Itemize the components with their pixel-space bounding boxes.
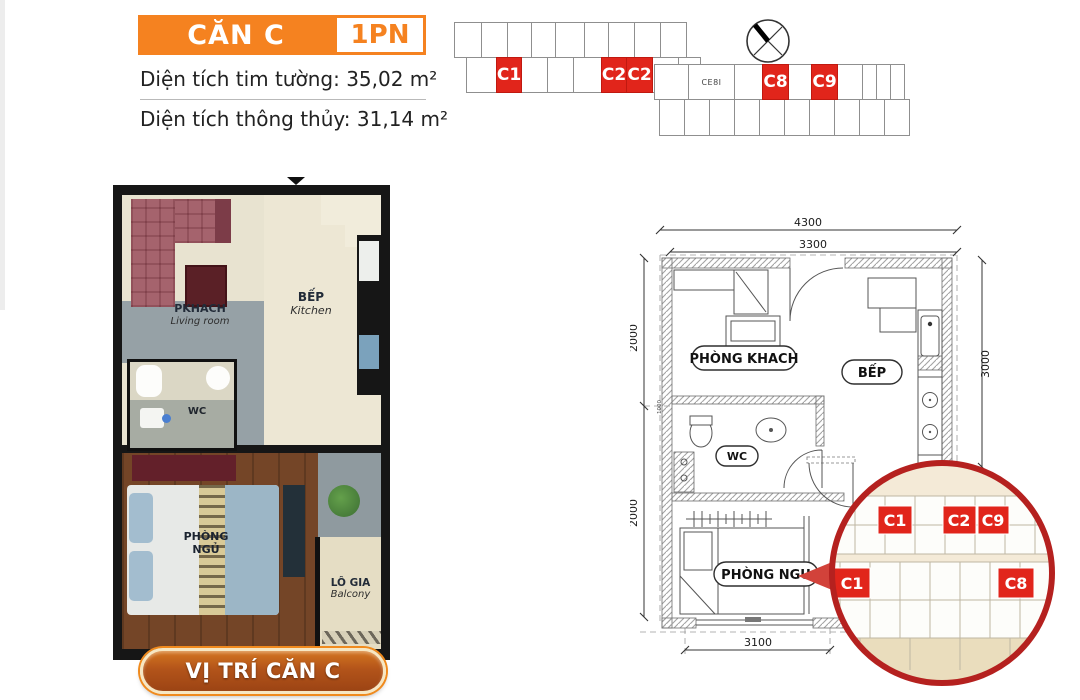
- unit-marker: C9: [811, 64, 838, 100]
- kitchen-label-vi: BẾP: [281, 291, 341, 305]
- coffee-table: [185, 265, 227, 307]
- stove-2d: [918, 377, 942, 455]
- svg-text:C1: C1: [841, 574, 864, 593]
- divider-line: [140, 99, 426, 100]
- bathtub: [136, 365, 162, 397]
- headboard-wall: [132, 455, 236, 481]
- bed-pillow: [129, 493, 153, 543]
- site-plan-row-b1: CE8I C8 C9: [655, 64, 905, 100]
- svg-text:C9: C9: [982, 511, 1005, 530]
- magnifier-unit-marker: C8: [998, 568, 1034, 598]
- living-room-label-en: Living room: [160, 316, 240, 328]
- shower-2d: [674, 452, 694, 492]
- bedroom-label: PHÒNG NGỦ: [161, 531, 251, 556]
- location-button-label: VỊ TRÍ CĂN C: [186, 659, 341, 683]
- unit-marker: C1: [496, 57, 522, 93]
- floor-plan-2d: 4300 3300 2000 2000 1000 3000 3100: [630, 210, 1080, 700]
- balcony-label: LÔ GIA Balcony: [320, 577, 381, 601]
- hallway-floor: [237, 363, 264, 445]
- site-plan-small-cell: CE8I: [688, 64, 735, 100]
- svg-text:C8: C8: [1005, 574, 1028, 593]
- area-label: Diện tích thông thủy:: [140, 107, 351, 131]
- kitchen-dishwasher: [359, 335, 379, 369]
- sofa-armrest: [215, 199, 231, 243]
- plant: [328, 485, 360, 517]
- living-room-label-vi: PKHACH: [160, 303, 240, 316]
- dim-left-lower: 2000: [630, 499, 640, 527]
- bedroom-count-badge: 1PN: [334, 15, 426, 55]
- magnifier-unit-marker: C2: [943, 506, 976, 534]
- wc-room: WC: [127, 359, 237, 451]
- can-c-floorplan-page: CĂN C 1PN Diện tích tim tường: 35,02 m² …: [0, 0, 1080, 700]
- bed-pillow: [129, 551, 153, 601]
- unit-marker: C8: [762, 64, 789, 100]
- page-edge-artifact: [0, 0, 5, 310]
- magnifier-unit-marker: C9: [978, 506, 1009, 534]
- toilet-flush: [162, 414, 171, 423]
- floor-plan-3d: PKHACH Living room BẾP Kitchen WC: [113, 185, 390, 660]
- dim-top-outer: 4300: [794, 216, 822, 229]
- wc-label: WC: [182, 406, 212, 418]
- dim-top-inner: 3300: [799, 238, 827, 251]
- room-label-living: PHÒNG KHACH: [690, 351, 799, 367]
- room-label-bedroom: PHÒNG NGU: [721, 567, 811, 583]
- doors: [784, 268, 853, 507]
- kitchen-cabinet-upper: [321, 195, 381, 225]
- balcony-label-en: Balcony: [320, 589, 381, 601]
- dim-bottom: 3100: [744, 636, 772, 649]
- magnifier-unit-marker: C1: [834, 568, 870, 598]
- toilet: [140, 408, 164, 428]
- balcony-label-vi: LÔ GIA: [320, 577, 381, 589]
- area-line-net: Diện tích thông thủy: 31,14 m²: [140, 106, 450, 132]
- unit-title: CĂN C: [187, 20, 285, 51]
- wash-basin: [206, 366, 230, 390]
- balcony: LÔ GIA Balcony: [315, 537, 381, 649]
- area-label: Diện tích tim tường:: [140, 67, 340, 91]
- unit-marker: C2: [626, 57, 653, 93]
- area-line-gross: Diện tích tim tường: 35,02 m²: [140, 66, 450, 92]
- living-room-label: PKHACH Living room: [160, 303, 240, 327]
- area-value: 31,14 m²: [357, 107, 448, 131]
- dim-left-upper: 2000: [630, 324, 640, 352]
- kitchen-appliance: [359, 241, 379, 281]
- unit-marker: C2: [601, 57, 627, 93]
- site-plan-row-b2: [660, 99, 910, 136]
- dim-right: 3000: [979, 350, 992, 378]
- kitchen-label: BẾP Kitchen: [281, 291, 341, 317]
- bedroom-label-line1: PHÒNG: [161, 531, 251, 544]
- svg-text:C1: C1: [884, 511, 907, 530]
- location-button[interactable]: VỊ TRÍ CĂN C: [140, 648, 386, 694]
- entry-arrow-icon: [287, 177, 305, 185]
- room-label-kitchen: BẾP: [858, 364, 886, 381]
- site-plan-row-a1: [455, 22, 687, 58]
- svg-text:C2: C2: [948, 511, 971, 530]
- area-value: 35,02 m²: [346, 67, 437, 91]
- kitchen-label-en: Kitchen: [281, 305, 341, 318]
- badge-label: 1PN: [351, 20, 410, 50]
- compass-icon: [745, 18, 791, 64]
- bedroom-label-line2: NGỦ: [161, 544, 251, 557]
- unit-title-box: CĂN C: [138, 15, 334, 55]
- bedroom-bench: [283, 485, 305, 577]
- sofa-chaise: [131, 199, 175, 307]
- room-label-wc: WC: [727, 450, 747, 463]
- magnifier-unit-marker: C1: [878, 506, 912, 534]
- balcony-grille: [322, 631, 381, 644]
